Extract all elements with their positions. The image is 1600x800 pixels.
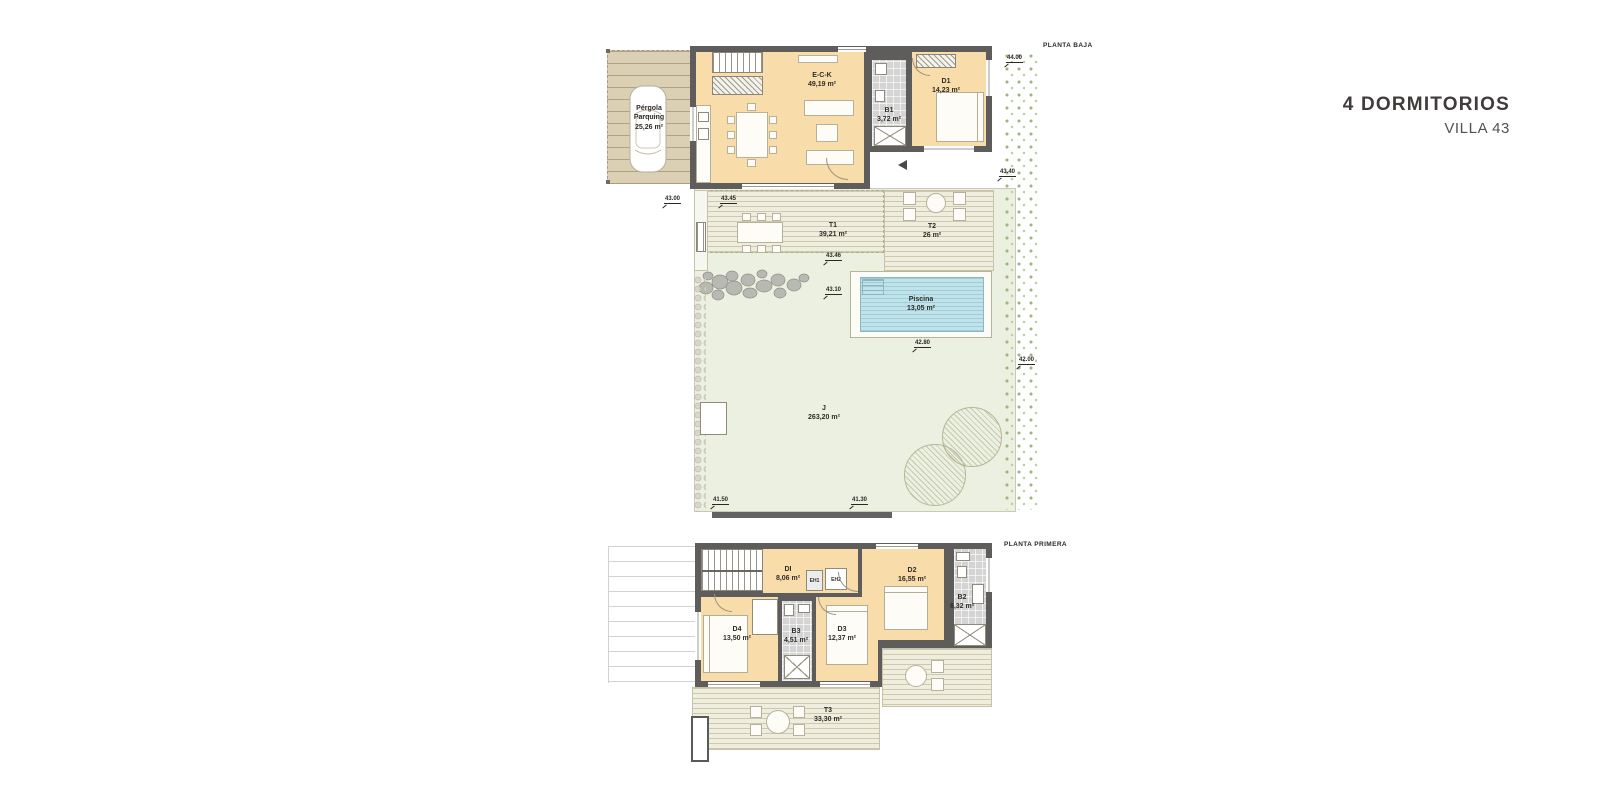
room-area: 49,19 m² bbox=[792, 80, 852, 89]
chair bbox=[750, 706, 762, 718]
toilet bbox=[875, 90, 885, 102]
room-label-t2: T2 26 m² bbox=[902, 222, 962, 241]
entrance-arrow-icon bbox=[898, 160, 907, 170]
stone-border bbox=[694, 276, 706, 512]
level-marker: 42.00 bbox=[1018, 357, 1035, 365]
kitchen-sink bbox=[698, 112, 709, 122]
window bbox=[876, 544, 918, 549]
floor-label-planta-baja: PLANTA BAJA bbox=[1043, 42, 1093, 49]
level-marker: 44.00 bbox=[1006, 55, 1023, 63]
chair bbox=[769, 116, 777, 124]
chair bbox=[757, 213, 766, 221]
tree bbox=[904, 444, 966, 506]
room-name: T2 bbox=[902, 222, 962, 231]
lounge-chair bbox=[953, 208, 966, 221]
round-table bbox=[926, 193, 946, 213]
floorplan-page: 4 DORMITORIOS VILLA 43 Pérgola Parquing … bbox=[0, 0, 1600, 800]
window bbox=[986, 558, 992, 592]
toilet bbox=[784, 604, 794, 616]
staircase bbox=[701, 549, 763, 591]
bed bbox=[884, 586, 928, 630]
room-area: 14,23 m² bbox=[916, 86, 976, 95]
window bbox=[820, 682, 870, 687]
chair bbox=[757, 245, 766, 253]
room-name: Parquing bbox=[614, 113, 684, 122]
garden-shed bbox=[700, 402, 727, 435]
room-label-b1: B1 3,72 m² bbox=[867, 106, 911, 125]
coffee-table bbox=[816, 124, 838, 142]
room-name: Pérgola bbox=[614, 104, 684, 113]
room-label-d1: D1 14,23 m² bbox=[916, 77, 976, 96]
window bbox=[838, 47, 866, 52]
pergola-roof-beams bbox=[608, 546, 696, 683]
lounge-chair bbox=[903, 208, 916, 221]
level-marker: 43.00 bbox=[664, 196, 681, 204]
room-name: D4 bbox=[707, 625, 767, 634]
decorative-stones bbox=[696, 268, 811, 302]
staircase-upper-flight bbox=[712, 52, 763, 73]
room-name: J bbox=[794, 404, 854, 413]
room-area: 16,55 m² bbox=[882, 575, 942, 584]
bed-pillow-line bbox=[977, 93, 978, 141]
chair bbox=[742, 245, 751, 253]
level-marker: 43.10 bbox=[825, 287, 842, 295]
room-area: 13,05 m² bbox=[891, 304, 951, 313]
room-area: 33,30 m² bbox=[798, 715, 858, 724]
outdoor-table bbox=[737, 222, 783, 243]
boundary-wall bbox=[712, 512, 892, 518]
window bbox=[695, 612, 701, 660]
page-title: 4 DORMITORIOS bbox=[1280, 94, 1510, 116]
room-area: 39,21 m² bbox=[803, 230, 863, 239]
shower bbox=[874, 126, 906, 146]
dining-table bbox=[736, 112, 768, 158]
room-area: 6,32 m² bbox=[940, 602, 984, 611]
room-label-d2: D2 16,55 m² bbox=[882, 566, 942, 585]
room-area: 25,26 m² bbox=[614, 123, 684, 132]
chair bbox=[931, 678, 944, 691]
room-label-eck: E-C-K 49,19 m² bbox=[792, 71, 852, 90]
chair bbox=[747, 103, 756, 111]
chair bbox=[727, 146, 735, 154]
chair bbox=[769, 131, 777, 139]
bed bbox=[703, 615, 748, 673]
chair bbox=[727, 131, 735, 139]
sofa bbox=[804, 100, 854, 116]
sliding-door bbox=[742, 184, 834, 189]
room-label-piscina: Piscina 13,05 m² bbox=[891, 295, 951, 314]
lounge-chair bbox=[953, 192, 966, 205]
room-name: D3 bbox=[812, 625, 872, 634]
exterior-steps bbox=[696, 222, 706, 252]
room-name: D2 bbox=[882, 566, 942, 575]
window bbox=[708, 682, 760, 687]
chair bbox=[769, 146, 777, 154]
room-name: E-C-K bbox=[792, 71, 852, 80]
floor-label-planta-primera: PLANTA PRIMERA bbox=[1004, 541, 1067, 548]
shower bbox=[954, 624, 986, 646]
wardrobe-eh1: EH1 bbox=[806, 570, 823, 591]
pergola-corner-post bbox=[606, 180, 610, 184]
washbasin bbox=[875, 63, 887, 75]
window bbox=[924, 146, 974, 152]
vegetation-strip bbox=[1004, 52, 1038, 510]
room-area: 26 m² bbox=[902, 231, 962, 240]
washbasin bbox=[956, 552, 970, 561]
chair bbox=[747, 159, 756, 167]
room-area: 3,72 m² bbox=[867, 115, 911, 124]
room-name: T1 bbox=[803, 221, 863, 230]
room-label-d3: D3 12,37 m² bbox=[812, 625, 872, 644]
level-marker: 43.46 bbox=[825, 253, 842, 261]
bed bbox=[936, 92, 984, 142]
kitchen-stove bbox=[698, 128, 709, 140]
washbasin bbox=[798, 604, 810, 613]
chair bbox=[772, 245, 781, 253]
window bbox=[986, 60, 992, 96]
chair bbox=[750, 724, 762, 736]
toilet bbox=[957, 566, 967, 578]
chair bbox=[727, 116, 735, 124]
room-name: B1 bbox=[867, 106, 911, 115]
level-marker: 43.45 bbox=[720, 196, 737, 204]
room-area: 13,50 m² bbox=[707, 634, 767, 643]
title-block: 4 DORMITORIOS VILLA 43 bbox=[1280, 94, 1510, 137]
room-area: 12,37 m² bbox=[812, 634, 872, 643]
room-label-d4: D4 13,50 m² bbox=[707, 625, 767, 644]
room-area: 263,20 m² bbox=[794, 413, 854, 422]
window bbox=[690, 107, 696, 141]
round-table bbox=[766, 710, 790, 734]
room-label-pergola: Pérgola Parquing 25,26 m² bbox=[614, 104, 684, 132]
chair bbox=[793, 724, 805, 736]
bed-pillow-line bbox=[885, 592, 927, 593]
room-name: Piscina bbox=[891, 295, 951, 304]
pergola-corner-post bbox=[606, 49, 610, 53]
room-label-t1: T1 39,21 m² bbox=[803, 221, 863, 240]
level-marker: 41.50 bbox=[712, 497, 729, 505]
level-marker: 41.30 bbox=[851, 497, 868, 505]
page-subtitle: VILLA 43 bbox=[1280, 120, 1510, 137]
shower bbox=[784, 655, 810, 679]
room-label-t3: T3 33,30 m² bbox=[798, 706, 858, 725]
planter bbox=[691, 716, 709, 762]
sideboard bbox=[798, 55, 838, 63]
room-label-b2: B2 6,32 m² bbox=[940, 593, 984, 612]
chair bbox=[931, 660, 944, 673]
level-marker: 43.40 bbox=[999, 169, 1016, 177]
staircase-rail bbox=[702, 570, 762, 572]
room-label-jardin: J 263,20 m² bbox=[794, 404, 854, 423]
staircase-lower-flight bbox=[712, 76, 763, 95]
pool-steps bbox=[862, 279, 884, 295]
room-name: B2 bbox=[940, 593, 984, 602]
level-marker: 42.80 bbox=[914, 340, 931, 348]
room-name: T3 bbox=[798, 706, 858, 715]
round-table bbox=[905, 665, 927, 687]
chair bbox=[772, 213, 781, 221]
lounge-chair bbox=[903, 192, 916, 205]
room-name: D1 bbox=[916, 77, 976, 86]
chair bbox=[742, 213, 751, 221]
